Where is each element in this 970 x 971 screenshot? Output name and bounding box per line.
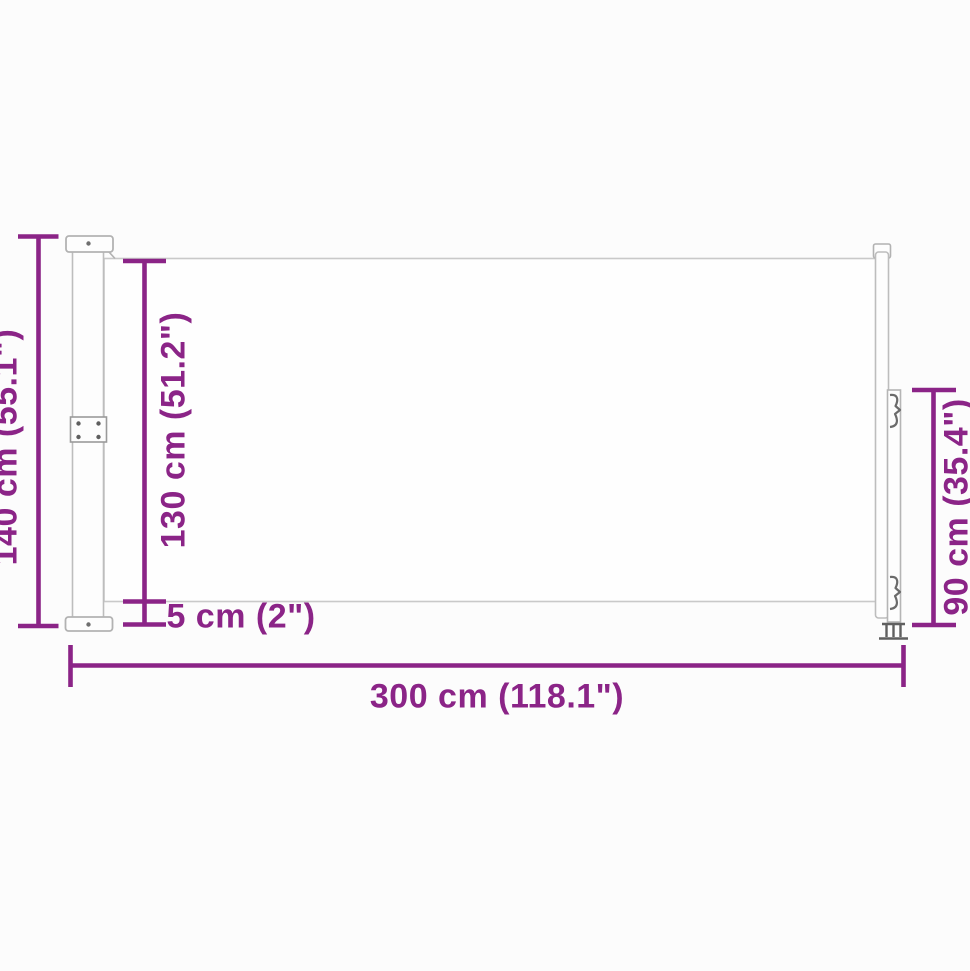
line-art-drawing [0, 0, 970, 971]
awning-fabric-panel [104, 259, 877, 602]
screw-icon [86, 622, 90, 626]
cassette-top-step [109, 252, 115, 259]
label-post-height: 90 cm (35.4") [938, 398, 970, 615]
screw-icon [96, 435, 100, 439]
label-fabric-height: 130 cm (51.2") [155, 312, 194, 549]
screw-icon [96, 421, 100, 425]
label-bottom-gap: 5 cm (2") [166, 598, 315, 637]
right-pole-body [876, 252, 889, 618]
awning-dimension-diagram: 140 cm (55.1") 130 cm (51.2") 5 cm (2") … [0, 0, 970, 971]
foot-bracket-icon [879, 624, 908, 639]
label-total-height: 140 cm (55.1") [0, 329, 26, 566]
screw-icon [76, 421, 80, 425]
screw-icon [86, 241, 90, 245]
label-total-length: 300 cm (118.1") [370, 678, 624, 717]
screw-icon [76, 435, 80, 439]
wall-mount-plate [71, 417, 107, 442]
